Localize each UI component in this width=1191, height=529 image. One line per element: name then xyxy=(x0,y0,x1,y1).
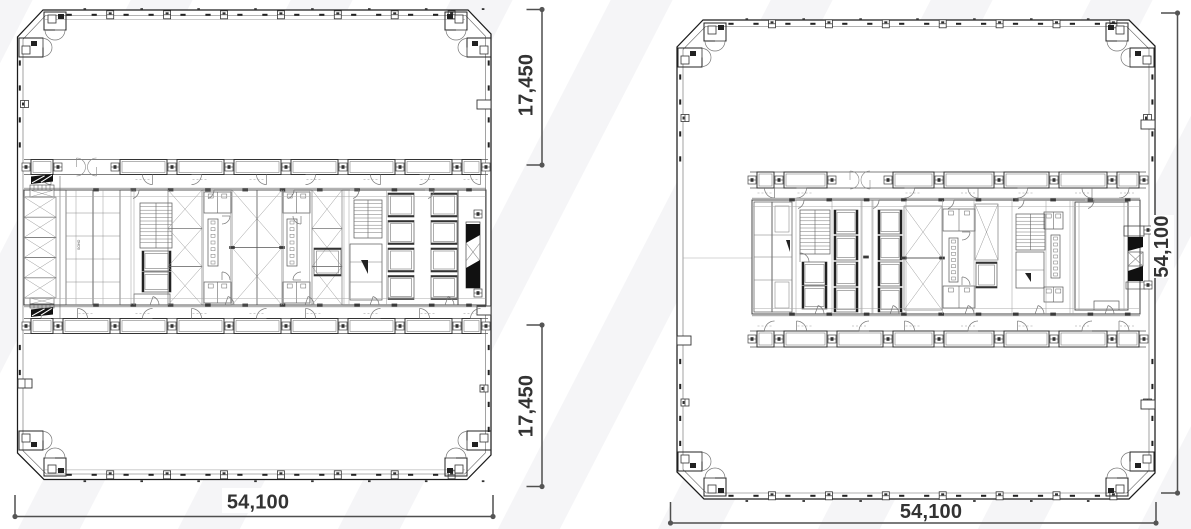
svg-text:17,450: 17,450 xyxy=(515,54,537,116)
svg-text:SOHO: SOHO xyxy=(77,239,81,250)
svg-text:17,450: 17,450 xyxy=(515,375,537,437)
svg-text:54,100: 54,100 xyxy=(900,501,962,523)
svg-text:54,100: 54,100 xyxy=(1151,215,1173,277)
svg-text:54,100: 54,100 xyxy=(227,492,289,514)
